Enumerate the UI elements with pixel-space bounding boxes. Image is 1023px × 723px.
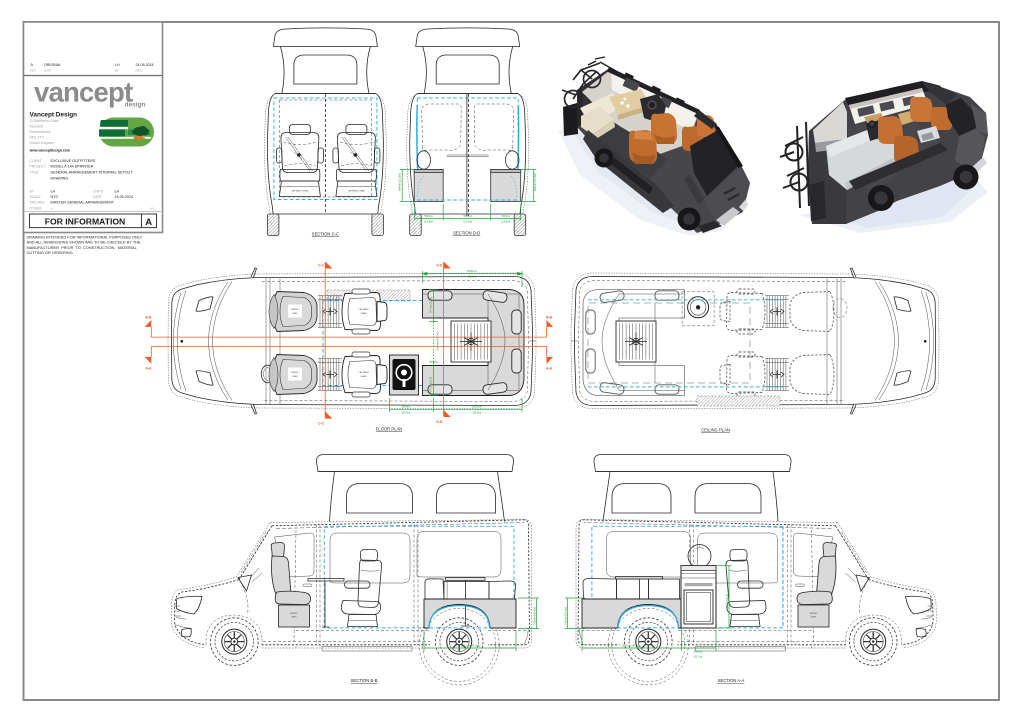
svg-text:FLOOR PLAN: FLOOR PLAN [376, 427, 403, 432]
svg-text:[63.0in]: [63.0in] [468, 275, 477, 279]
svg-text:Herefordshire: Herefordshire [30, 130, 51, 134]
svg-text:D-D: D-D [436, 264, 443, 268]
svg-text:Hereford: Hereford [30, 125, 44, 129]
svg-text:762mm [30.0in]: 762mm [30.0in] [533, 607, 537, 625]
svg-text:[21.7in]: [21.7in] [694, 655, 703, 659]
svg-text:NOTE: NOTE [44, 69, 51, 73]
svg-text:762mm [30.0in]: 762mm [30.0in] [564, 607, 568, 625]
svg-text:DRG REF: DRG REF [30, 201, 45, 205]
svg-text:HR1 2TY: HR1 2TY [30, 135, 45, 139]
svg-text:SEAT: SEAT [811, 616, 817, 619]
svg-text:520mm: 520mm [402, 405, 411, 409]
svg-text:1930mm [63.0in]: 1930mm [63.0in] [621, 644, 641, 648]
svg-text:SWIVEL: SWIVEL [290, 613, 299, 615]
svg-text:www.vanceptdesign.com: www.vanceptdesign.com [29, 149, 70, 153]
svg-text:SECTION A-A: SECTION A-A [718, 678, 745, 683]
svg-text:BY: BY [30, 190, 35, 194]
svg-text:550mm: 550mm [694, 650, 703, 654]
svg-text:CLIENT: CLIENT [30, 159, 42, 163]
svg-text:REV: REV [31, 69, 37, 73]
svg-text:745mm [29.3]: 745mm [29.3] [725, 594, 729, 610]
svg-text:D-D: D-D [436, 420, 443, 424]
svg-text:804mm [31.6in]: 804mm [31.6in] [398, 173, 402, 191]
svg-text:SECTION B-B: SECTION B-B [351, 678, 378, 683]
svg-text:DRAWING: DRAWING [51, 177, 69, 181]
svg-text:C-C: C-C [318, 264, 325, 268]
svg-text:C-C: C-C [318, 422, 325, 426]
svg-text:504mm: 504mm [424, 214, 433, 218]
svg-text:CHK'D: CHK'D [93, 190, 104, 194]
svg-text:B-B: B-B [145, 316, 152, 320]
svg-text:1801mm: 1801mm [472, 405, 482, 409]
svg-text:11 Blenheim Close: 11 Blenheim Close [30, 119, 59, 123]
svg-text:LH: LH [51, 190, 56, 194]
svg-text:PROJECT: PROJECT [30, 164, 46, 168]
svg-text:504mm: 504mm [501, 214, 510, 218]
svg-text:SECTION C-C: SECTION C-C [312, 232, 339, 237]
svg-text:[63.0in]: [63.0in] [473, 411, 482, 415]
svg-text:LH: LH [115, 63, 120, 67]
svg-text:CEILING PLAN: CEILING PLAN [701, 428, 730, 433]
svg-text:~: ~ [51, 207, 53, 211]
svg-text:457mm [18.0]: 457mm [18.0] [429, 377, 433, 393]
svg-text:SEAT: SEAT [291, 616, 297, 619]
svg-text:SCALE: SCALE [30, 195, 42, 199]
svg-text:[19.8in]: [19.8in] [424, 220, 433, 224]
svg-text:[21.7in]: [21.7in] [463, 220, 472, 224]
svg-text:TITLE: TITLE [30, 171, 40, 175]
svg-text:DATE: DATE [136, 69, 143, 73]
svg-text:A: A [145, 217, 152, 228]
svg-text:MODEL A 144 SPRINTER: MODEL A 144 SPRINTER [51, 164, 94, 168]
svg-text:United Kingdom: United Kingdom [30, 141, 55, 145]
svg-text:SECTION D-D: SECTION D-D [453, 231, 480, 236]
svg-text:804mm [31.6in]: 804mm [31.6in] [533, 173, 537, 191]
svg-text:GENERAL ARRANGEMENT INTERNAL S: GENERAL ARRANGEMENT INTERNAL SETOUT [51, 171, 134, 175]
svg-text:EXCLUSIVE OUTFITTERS: EXCLUSIVE OUTFITTERS [51, 159, 96, 163]
svg-text:550mm: 550mm [463, 214, 472, 218]
svg-text:A-A: A-A [546, 367, 553, 371]
svg-text:A/L: A/L [150, 207, 155, 211]
svg-text:BY: BY [115, 69, 119, 73]
svg-text:FOR INFORMATION: FOR INFORMATION [45, 217, 126, 227]
svg-text:1801mm: 1801mm [467, 269, 477, 273]
svg-text:OTHER: OTHER [30, 207, 42, 211]
svg-text:MASTER GENERAL ARRANGEMENT: MASTER GENERAL ARRANGEMENT [51, 201, 115, 205]
svg-text:550mm [21.7in]: 550mm [21.7in] [436, 332, 440, 350]
svg-text:457mm [18.0]: 457mm [18.0] [429, 297, 433, 313]
svg-text:NTS: NTS [51, 195, 59, 199]
svg-text:[20.5in]: [20.5in] [402, 411, 411, 415]
svg-text:DATE: DATE [93, 195, 103, 199]
svg-text:vancept: vancept [34, 77, 133, 108]
svg-text:Vancept Design: Vancept Design [30, 112, 78, 119]
svg-text:24.05.2024: 24.05.2024 [136, 63, 154, 67]
svg-text:A-A: A-A [145, 367, 152, 371]
svg-text:ORIGINAL: ORIGINAL [44, 63, 61, 67]
svg-text:design: design [125, 102, 146, 109]
svg-text:SWIVEL: SWIVEL [810, 613, 819, 615]
svg-text:LH: LH [115, 190, 120, 194]
svg-text:CUTTING OR ORDERING: CUTTING OR ORDERING [27, 250, 73, 255]
svg-text:1801mm [63.0in]: 1801mm [63.0in] [460, 644, 480, 648]
svg-text:B-B: B-B [546, 316, 553, 320]
svg-text:[19.8in]: [19.8in] [501, 220, 510, 224]
svg-text:24.05.2024: 24.05.2024 [115, 195, 133, 199]
